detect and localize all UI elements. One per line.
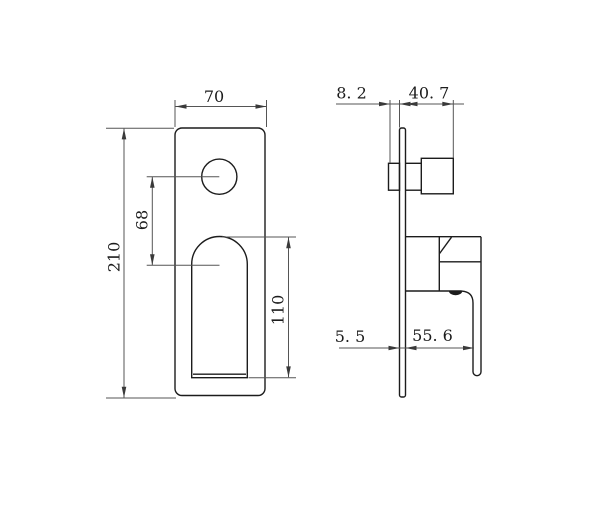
dim-label-body-setback: 8. 2 xyxy=(336,84,367,103)
inwall-body xyxy=(389,163,400,190)
dim-label-knob-projection: 40. 7 xyxy=(409,84,450,103)
handle-profile xyxy=(406,237,482,376)
arrowhead xyxy=(406,346,417,351)
dim-cutout-height: 110 xyxy=(222,237,296,378)
dim-front-width: 70 xyxy=(175,87,267,127)
lever-cutout-outline xyxy=(192,237,248,378)
dim-label-plate-thickness: 5. 5 xyxy=(335,327,366,346)
arrowhead xyxy=(122,387,127,398)
arrowhead xyxy=(286,366,291,377)
dim-label-cutout-height: 110 xyxy=(269,295,288,326)
dim-front-height: 210 xyxy=(105,128,177,398)
side-view: 8. 2 40. 7 5. 5 55. 6 xyxy=(335,84,481,398)
dim-label-width: 70 xyxy=(204,87,224,106)
side-plate-edge xyxy=(400,128,406,397)
arrowhead xyxy=(256,104,267,109)
mixer-dimension-drawing: 70 210 68 110 xyxy=(0,0,610,531)
dim-label-height: 210 xyxy=(105,242,124,273)
diverter-knob xyxy=(421,158,453,194)
dim-label-handle-projection: 55. 6 xyxy=(412,326,453,345)
arrowhead xyxy=(150,254,155,265)
arrowhead xyxy=(286,237,291,248)
arrowhead xyxy=(122,128,127,139)
lever-outline xyxy=(462,237,481,376)
front-plate-outline xyxy=(175,128,265,396)
handle-slant-face xyxy=(440,237,452,253)
dim-hole-offset: 68 xyxy=(133,177,220,266)
arrowhead xyxy=(389,346,400,351)
lever-pivot-detail xyxy=(449,291,462,295)
front-view: 70 210 68 110 xyxy=(105,87,297,398)
dim-side-bottom: 5. 5 55. 6 xyxy=(335,326,474,350)
arrowhead xyxy=(379,102,390,107)
technical-drawing-page: 70 210 68 110 xyxy=(0,0,610,531)
arrowhead xyxy=(176,104,187,109)
dim-label-hole-offset: 68 xyxy=(133,210,152,230)
arrowhead xyxy=(150,177,155,188)
